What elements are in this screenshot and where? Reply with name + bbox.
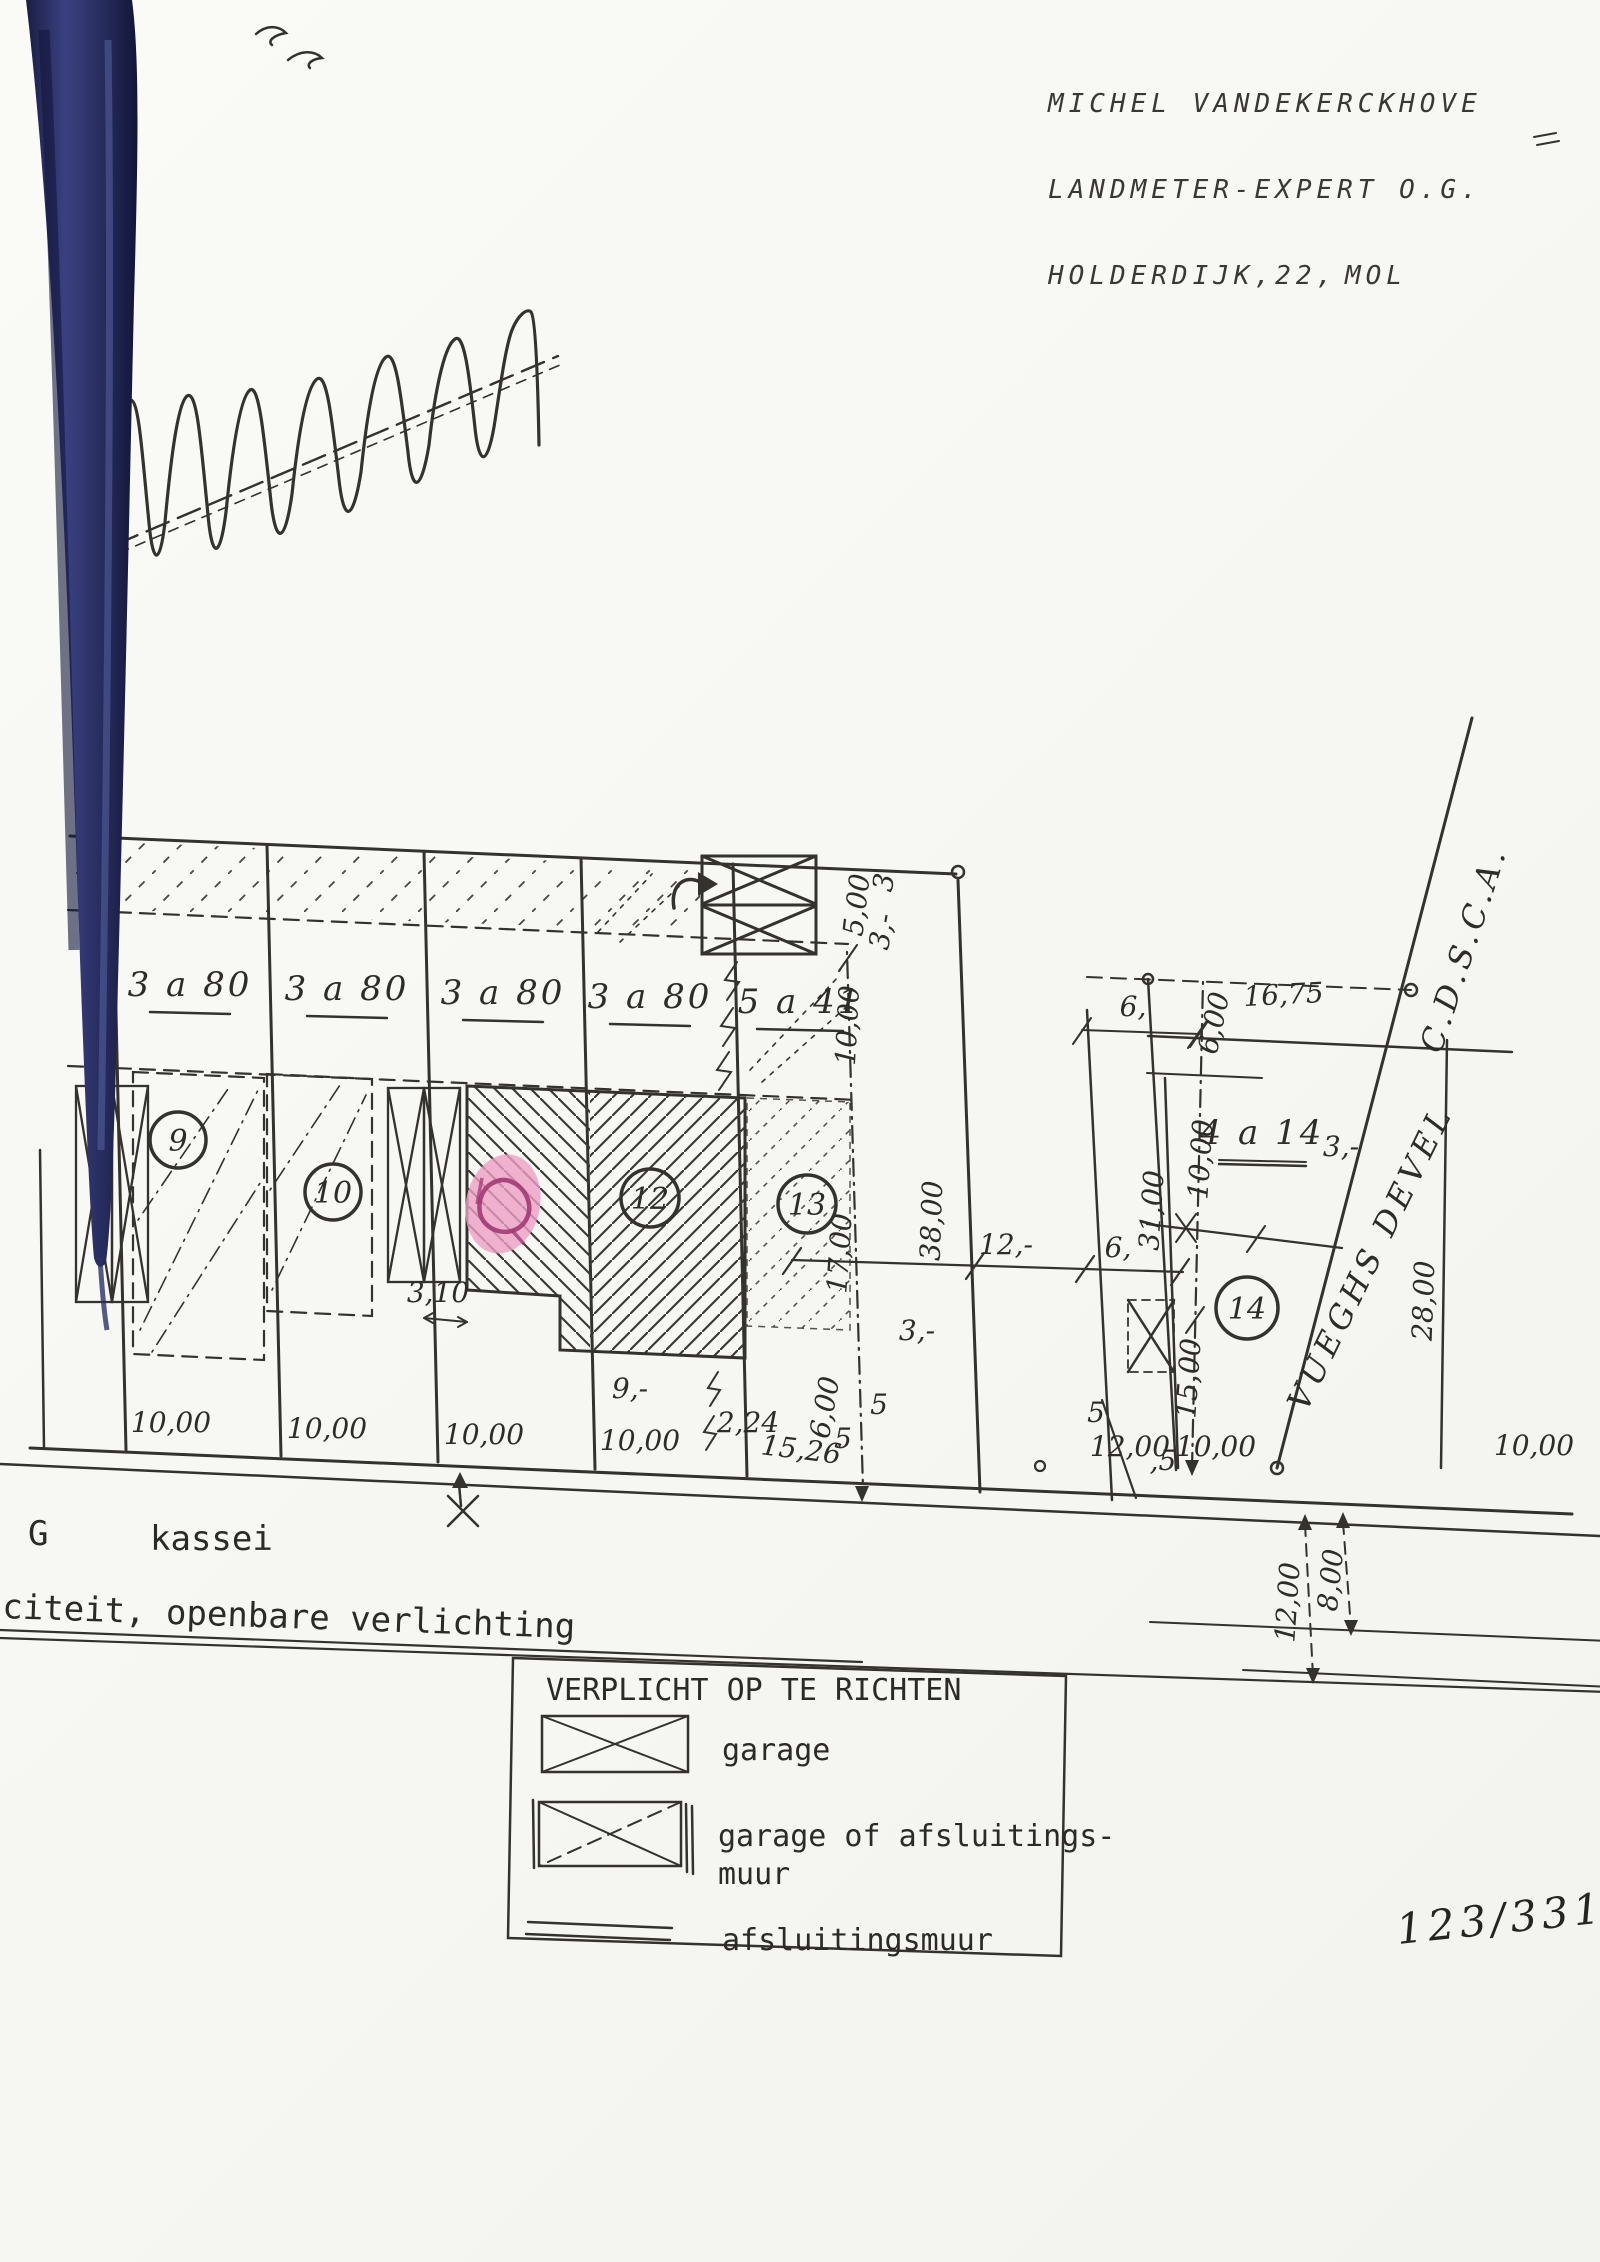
dimension-label: 3,- [862,911,901,952]
dimension-label: 6, [1105,1231,1132,1264]
dimension-label: 10,00 [600,1424,680,1457]
surveyor-header: MICHEL VANDEKERCKHOVE LANDMETER-EXPERT O… [1047,89,1482,291]
street-verlichting-label: citeit, openbare verlichting [2,1587,576,1647]
garage-symbol-plot14 [1128,1300,1174,1372]
legend-box: VERPLICHT OP TE RICHTEN garage garage of… [508,1658,1115,1958]
dimension-label: 10,00 [287,1412,367,1445]
dimension-label: 17,00 [820,1212,859,1294]
legend-symbol-garage-muur [533,1800,693,1874]
dimension-label: 3,- [1323,1130,1359,1163]
parcel-number-12: 12 [631,1182,669,1217]
dimension-label: 10,00 [1176,1430,1256,1463]
dimension-label: 10,00 [1181,1118,1220,1200]
binder-edge [26,0,138,1330]
survey-plan-drawing: VERPLICHT OP TE RICHTEN garage garage of… [0,0,1600,2262]
dimension-label: 16,75 [1243,976,1325,1013]
dimension-label: ,5 [1150,1444,1177,1477]
dimension-label: 38,00 [914,1180,950,1261]
dimension-label: 3,10 [407,1276,469,1309]
area-label-plot12: 3 a 80 [588,977,713,1017]
survey-point-baseline [1035,1461,1045,1471]
area-label-plot11: 3 a 80 [441,973,566,1013]
street-g-label: G [28,1514,48,1554]
surveyor-city: MOL [1344,261,1407,291]
signature-baseline [84,356,558,558]
legend-label-muur: afsluitingsmuur [722,1923,993,1958]
dimension-label: 3,- [899,1314,935,1347]
dimension-label: 31,00 [1132,1169,1171,1251]
area-label-plot9: 3 a 80 [128,965,253,1005]
dim-3-10 [424,1313,467,1327]
kerb-x-mark [448,1472,478,1526]
garage-pair-divider3 [388,1088,460,1282]
house-plot9 [133,1072,264,1360]
road-name-cdsca: C.D.S.C.A. [1412,840,1515,1057]
dimension-label: 5 [1087,1396,1105,1429]
legend-label-garage-muur-1: garage of afsluitings- [718,1819,1115,1854]
dimension-label: 15,00 [1169,1337,1208,1419]
dimension-label: 12,00 [1268,1561,1307,1643]
scanned-survey-plan-page: VERPLICHT OP TE RICHTEN garage garage of… [0,0,1600,2262]
dimension-label: 6,00 [1191,989,1236,1057]
signature-squiggle [84,311,560,567]
survey-point-top-right [952,866,964,878]
dimension-label: 10,00 [829,985,866,1067]
legend-title: VERPLICHT OP TE RICHTEN [546,1673,961,1708]
dimension-label: 10,00 [131,1406,211,1439]
small-check-mark-right [1534,133,1559,145]
street-kassei-label: kassei [150,1519,273,1559]
parcel-number-9: 9 [168,1124,187,1159]
page-number-handwritten: 123/331 [1394,1883,1600,1954]
surveyor-address: HOLDERDIJK,22, [1047,261,1337,291]
dimension-label: 10,00 [444,1418,524,1451]
arrow-icon [698,872,718,896]
legend-label-garage: garage [722,1733,830,1768]
dimension-label: 8,00 [1311,1547,1350,1612]
legend-symbol-garage [542,1716,688,1772]
dimension-label: 6, [1120,990,1147,1023]
plan-left-stub [40,1150,44,1448]
parcel-number-10: 10 [314,1176,352,1211]
parcel-number-14: 14 [1228,1292,1266,1327]
pen-marks-top-left [256,27,322,68]
surveyor-name: MICHEL VANDEKERCKHOVE [1047,89,1482,119]
dimension-label: 12,- [979,1228,1033,1261]
dimension-label: 10,00 [1494,1429,1574,1462]
parcel-number-13: 13 [788,1188,826,1223]
legend-label-garage-muur-2: muur [718,1857,790,1892]
plan-right-boundary-38 [958,880,980,1492]
legend-symbol-muur [526,1922,672,1940]
dimension-label: 9,- [612,1372,648,1405]
surveyor-title: LANDMETER-EXPERT O.G. [1048,175,1482,205]
dimension-label: 5 [870,1388,888,1421]
hatch-band-top [70,840,700,932]
area-label-plot10: 3 a 80 [285,969,410,1009]
dimension-label: 28,00 [1406,1260,1442,1342]
